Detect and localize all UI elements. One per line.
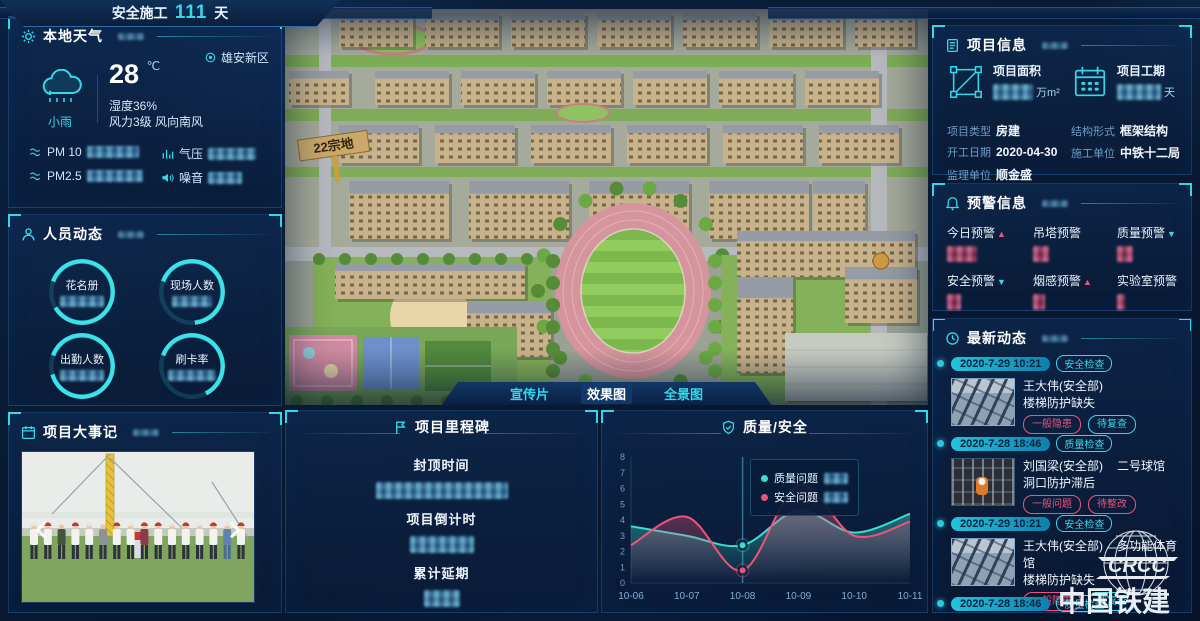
news-item[interactable]: 2020-7-28 18:46 质量检查 刘国梁(安全部) <box>943 595 1187 613</box>
stat-unit: 天 <box>1164 87 1175 99</box>
news-date-badge: 2020-7-29 10:21 <box>951 517 1050 531</box>
person-icon <box>21 227 36 242</box>
safe-days-unit: 天 <box>214 3 228 23</box>
milestone-delay: 累计延期 <box>286 563 597 608</box>
group-photo-illustration <box>22 452 255 603</box>
redacted-value <box>947 294 961 310</box>
alert-lab: 实验室预警 <box>1117 272 1199 311</box>
safe-days-banner: 安全施工 111 天 <box>0 0 340 27</box>
svg-text:6: 6 <box>620 484 625 494</box>
metric-pressure: 气压 <box>161 145 256 162</box>
chart-title: 质量/安全 <box>743 417 808 437</box>
alerts-panel: 预警信息 今日预警▲ 吊塔预警 质量预警▼ 安全预警▼ 烟感预警▲ 实验室预警 <box>932 183 1192 311</box>
bell-icon <box>945 196 960 211</box>
stat-project-area: 项目面积 万m² <box>947 62 1060 101</box>
news-issue: 洞口防护滞后 <box>1023 475 1165 492</box>
timeline-dot <box>937 600 944 607</box>
news-date-badge: 2020-7-28 18:46 <box>951 437 1050 451</box>
redacted-value <box>824 473 848 484</box>
timeline-dot <box>937 360 944 367</box>
svg-text:3: 3 <box>620 531 625 541</box>
header-deco <box>133 429 159 436</box>
metric-noise: 噪音 <box>161 169 242 186</box>
wind: 风力3级 风向南风 <box>109 113 203 130</box>
news-tag: 一般问题 <box>1023 495 1081 514</box>
news-panel: 最新动态 2020-7-29 10:21 安全检查 王大伟(安全部) 楼梯防护缺… <box>932 318 1192 613</box>
redacted-value <box>1117 84 1161 100</box>
news-issue: 楼梯防护缺失 <box>1023 395 1136 412</box>
speaker-icon <box>161 172 174 184</box>
redacted-value <box>1117 294 1125 310</box>
news-person: 刘国梁(安全部) <box>1023 459 1103 473</box>
news-type-badge: 安全检查 <box>1056 355 1112 372</box>
redacted-value <box>947 246 977 262</box>
temperature-unit: ℃ <box>147 59 160 73</box>
stat-unit: 万m² <box>1036 87 1060 99</box>
redacted-value <box>424 590 460 607</box>
safety-series-dot <box>761 494 768 501</box>
news-photo <box>951 538 1015 586</box>
field-start-date: 开工日期2020-04-30 <box>947 144 1057 160</box>
title-divider <box>1081 338 1179 339</box>
redacted-value <box>60 370 104 381</box>
personnel-panel: 人员动态 花名册 现场人数 出勤人数 刷卡率 <box>8 214 282 406</box>
svg-text:1: 1 <box>620 562 625 572</box>
title-divider <box>157 36 269 37</box>
redacted-value <box>208 148 256 160</box>
news-issue: 楼梯防护缺失 <box>1023 572 1187 589</box>
scene-view-tabs: 宣传片 效果图 全景图 <box>442 382 772 405</box>
milestone-panel: 项目里程碑 封顶时间 项目倒计时 累计延期 <box>285 410 598 613</box>
svg-text:7: 7 <box>620 468 625 478</box>
svg-text:0: 0 <box>620 578 625 588</box>
timeline-dot <box>937 440 944 447</box>
header-line <box>483 433 589 434</box>
trend-arrow: ▲ <box>997 229 1006 239</box>
divider <box>97 75 98 123</box>
news-type-badge: 质量检查 <box>1056 595 1112 612</box>
calendar-icon <box>21 425 36 440</box>
redacted-value <box>993 84 1033 100</box>
project-info-panel: 项目信息 项目面积 万m² <box>932 25 1192 175</box>
area-icon <box>947 63 985 101</box>
document-icon <box>945 38 960 53</box>
quality-series-dot <box>761 475 768 482</box>
title-divider <box>1081 203 1179 204</box>
news-tag: 待整改 <box>1088 495 1136 514</box>
redacted-value <box>376 482 508 499</box>
news-photo <box>951 378 1015 426</box>
trend-arrow: ▲ <box>1083 277 1092 287</box>
ring-label: 现场人数 <box>170 277 214 293</box>
svg-text:10-09: 10-09 <box>786 591 812 602</box>
event-photo <box>21 451 255 603</box>
redacted-value <box>172 296 212 307</box>
field-supervisor: 监理单位顺金盛 <box>947 166 1032 183</box>
safe-days-label: 安全施工 <box>112 3 168 23</box>
trend-arrow: ▼ <box>997 277 1006 287</box>
stat-label: 项目面积 <box>993 62 1060 79</box>
pressure-bars-icon <box>161 148 174 160</box>
field-contractor: 施工单位中铁十二局 <box>1071 144 1180 161</box>
personnel-title: 人员动态 <box>43 224 103 244</box>
milestone-title: 项目里程碑 <box>415 417 490 437</box>
header-deco <box>1042 335 1068 342</box>
news-location: 二号球馆 <box>1117 459 1165 473</box>
alert-crane: 吊塔预警 <box>1033 224 1115 263</box>
metric-pm25: PM2.5 <box>29 169 143 183</box>
redacted-value <box>208 172 242 184</box>
weather-title: 本地天气 <box>43 26 103 46</box>
alert-smoke: 烟感预警▲ <box>1033 272 1115 311</box>
svg-text:10-08: 10-08 <box>730 591 756 602</box>
field-project-type: 项目类型房建 <box>947 122 1020 139</box>
title-divider <box>1081 45 1179 46</box>
ring-attendance: 出勤人数 <box>49 333 115 399</box>
news-item[interactable]: 2020-7-28 18:46 质量检查 刘国梁(安全部)二号球馆 洞口防护滞后… <box>943 435 1187 514</box>
redacted-value <box>410 536 474 553</box>
svg-text:2: 2 <box>620 547 625 557</box>
weather-condition-block: 小雨 <box>29 69 91 130</box>
project-info-title: 项目信息 <box>967 35 1027 55</box>
shield-check-icon <box>721 420 736 435</box>
title-divider <box>172 432 269 433</box>
header-deco <box>118 33 144 40</box>
clock-icon <box>945 331 960 346</box>
ring-label: 刷卡率 <box>176 351 209 367</box>
redacted-value <box>824 492 848 503</box>
stat-label: 项目工期 <box>1117 62 1175 79</box>
rain-cloud-icon <box>36 69 84 105</box>
news-tag: 一般隐患 <box>1023 415 1081 434</box>
header-deco <box>1042 42 1068 49</box>
svg-text:5: 5 <box>620 499 625 509</box>
alert-today: 今日预警▲ <box>947 224 1029 263</box>
redacted-value <box>1033 246 1049 262</box>
svg-text:10-06: 10-06 <box>618 591 644 602</box>
sun-gear-icon <box>21 29 36 44</box>
ring-roster: 花名册 <box>49 259 115 325</box>
redacted-value <box>60 296 104 307</box>
location-label: 雄安新区 <box>221 49 269 66</box>
stat-project-duration: 项目工期 天 <box>1071 62 1175 101</box>
quality-safety-panel: 质量/安全 01234567810-0610-0710-0810-0910-10… <box>601 410 928 613</box>
metric-pm10: PM 10 <box>29 145 139 159</box>
alert-safety: 安全预警▼ <box>947 272 1029 311</box>
timeline-dot <box>937 520 944 527</box>
weather-condition: 小雨 <box>29 113 91 130</box>
milestone-topping-time: 封顶时间 <box>286 455 597 500</box>
ring-onsite: 现场人数 <box>159 259 225 325</box>
header-deco <box>118 231 144 238</box>
svg-text:4: 4 <box>620 515 625 525</box>
temperature: 28 ℃ <box>109 59 160 90</box>
news-title: 最新动态 <box>967 328 1027 348</box>
header-wing-right <box>768 7 1200 19</box>
news-date-badge: 2020-7-29 10:21 <box>951 357 1050 371</box>
svg-text:10-11: 10-11 <box>898 591 923 602</box>
svg-text:10-07: 10-07 <box>674 591 700 602</box>
ring-card-rate: 刷卡率 <box>159 333 225 399</box>
safe-days-value: 111 <box>175 2 208 24</box>
location-pin-icon <box>204 51 217 64</box>
news-tag: 待复查 <box>1088 415 1136 434</box>
trend-arrow: ▼ <box>1167 229 1176 239</box>
svg-text:10-10: 10-10 <box>841 591 867 602</box>
header-line <box>610 433 721 434</box>
ring-label: 出勤人数 <box>60 351 104 367</box>
news-person: 王大伟(安全部) <box>1023 378 1136 395</box>
dashboard: 安全施工 111 天 本地天气 雄安新区 <box>0 0 1200 621</box>
redacted-value <box>1117 246 1133 262</box>
location-indicator: 雄安新区 <box>204 49 269 66</box>
air-waves-icon <box>29 170 42 182</box>
alert-quality: 质量预警▼ <box>1117 224 1199 263</box>
alerts-title: 预警信息 <box>967 193 1027 213</box>
header-line <box>294 433 400 434</box>
field-structure: 结构形式框架结构 <box>1071 122 1168 139</box>
news-type-badge: 质量检查 <box>1056 435 1112 452</box>
tab-render-view[interactable]: 效果图 <box>581 383 632 404</box>
milestone-countdown: 项目倒计时 <box>286 509 597 554</box>
redacted-value <box>168 370 216 381</box>
news-person: 王大伟(安全部) <box>1023 539 1103 553</box>
tab-promo-video[interactable]: 宣传片 <box>504 383 555 404</box>
news-photo <box>951 458 1015 506</box>
calendar-icon <box>1071 63 1109 101</box>
header-deco <box>1042 200 1068 207</box>
weather-panel: 本地天气 雄安新区 小雨 28 ℃ 湿度36% 风力3级 风向南风 PM 10 <box>8 16 282 208</box>
quality-series-label: 质量问题 <box>774 470 818 486</box>
humidity: 湿度36% <box>109 97 157 114</box>
chart-tooltip: 质量问题 安全问题 <box>750 459 859 516</box>
redacted-value <box>87 146 139 158</box>
svg-text:8: 8 <box>620 452 625 462</box>
news-type-badge: 安全检查 <box>1056 515 1112 532</box>
events-title: 项目大事记 <box>43 422 118 442</box>
redacted-value <box>87 170 143 182</box>
header-line <box>809 433 920 434</box>
air-waves-icon <box>29 146 42 158</box>
title-divider <box>157 234 269 235</box>
redacted-value <box>1033 294 1045 310</box>
news-date-badge: 2020-7-28 18:46 <box>951 597 1050 611</box>
events-panel: 项目大事记 <box>8 412 282 613</box>
site-3d-render: 22宗地 <box>285 9 928 405</box>
ring-label: 花名册 <box>66 277 99 293</box>
safety-series-label: 安全问题 <box>774 489 818 505</box>
aerial-render: 22宗地 宣传片 效果图 全景图 <box>285 9 928 405</box>
tab-panorama[interactable]: 全景图 <box>658 383 709 404</box>
top-header: 安全施工 111 天 <box>0 0 1200 27</box>
news-item[interactable]: 2020-7-29 10:21 安全检查 王大伟(安全部) 楼梯防护缺失 一般隐… <box>943 355 1187 434</box>
